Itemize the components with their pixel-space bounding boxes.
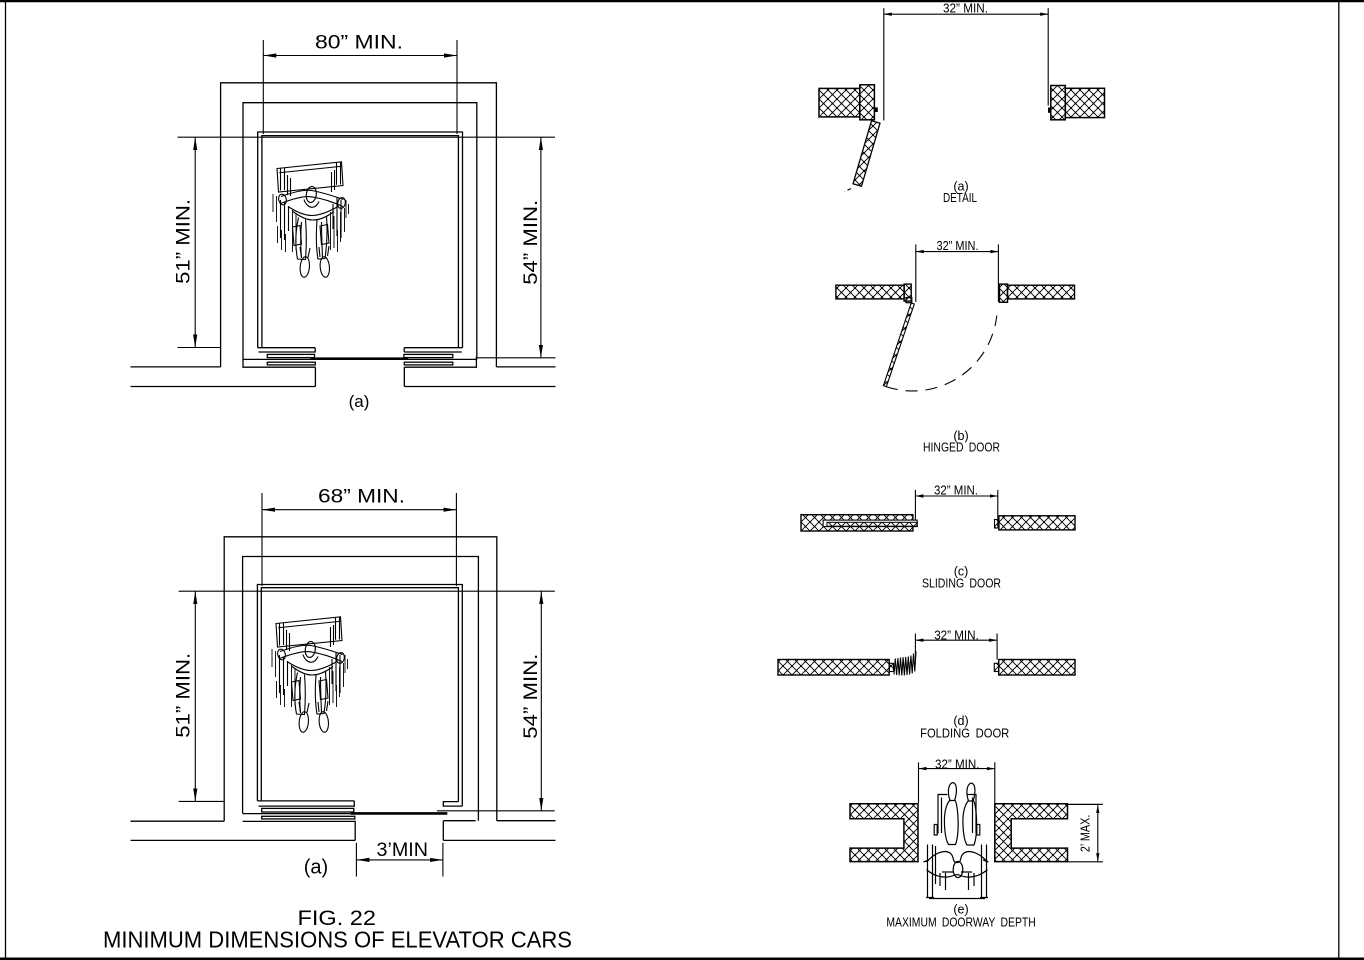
svg-text:32” MIN.: 32” MIN. — [934, 629, 979, 643]
svg-text:32” MIN.: 32” MIN. — [943, 2, 988, 16]
svg-text:(a): (a) — [304, 857, 328, 879]
svg-text:54” MIN.: 54” MIN. — [520, 654, 542, 739]
svg-text:(e): (e) — [953, 903, 968, 917]
svg-text:80” MIN.: 80” MIN. — [315, 32, 403, 54]
svg-text:DETAIL: DETAIL — [943, 191, 977, 205]
svg-text:FOLDING DOOR: FOLDING DOOR — [920, 727, 1009, 741]
svg-text:3’MIN: 3’MIN — [377, 839, 429, 861]
svg-text:2’ MAX.: 2’ MAX. — [1079, 815, 1093, 853]
svg-text:51” MIN.: 51” MIN. — [173, 199, 195, 284]
svg-text:SLIDING DOOR: SLIDING DOOR — [922, 577, 1001, 591]
svg-text:68” MIN.: 68” MIN. — [318, 486, 405, 508]
svg-text:(a): (a) — [349, 392, 370, 411]
svg-text:32” MIN.: 32” MIN. — [935, 757, 980, 771]
svg-text:32” MIN.: 32” MIN. — [937, 239, 979, 253]
svg-text:51” MIN.: 51” MIN. — [173, 653, 195, 738]
svg-text:32” MIN.: 32” MIN. — [934, 484, 978, 498]
svg-text:54” MIN.: 54” MIN. — [520, 200, 542, 285]
svg-text:MINIMUM DIMENSIONS OF ELEVA: MINIMUM DIMENSIONS OF ELEVATOR CARS — [103, 927, 572, 953]
svg-text:HINGED DOOR: HINGED DOOR — [923, 441, 1000, 455]
svg-text:MAXIMUM DOORWAY DEPTH: MAXIMUM DOORWAY DEPTH — [886, 916, 1035, 930]
